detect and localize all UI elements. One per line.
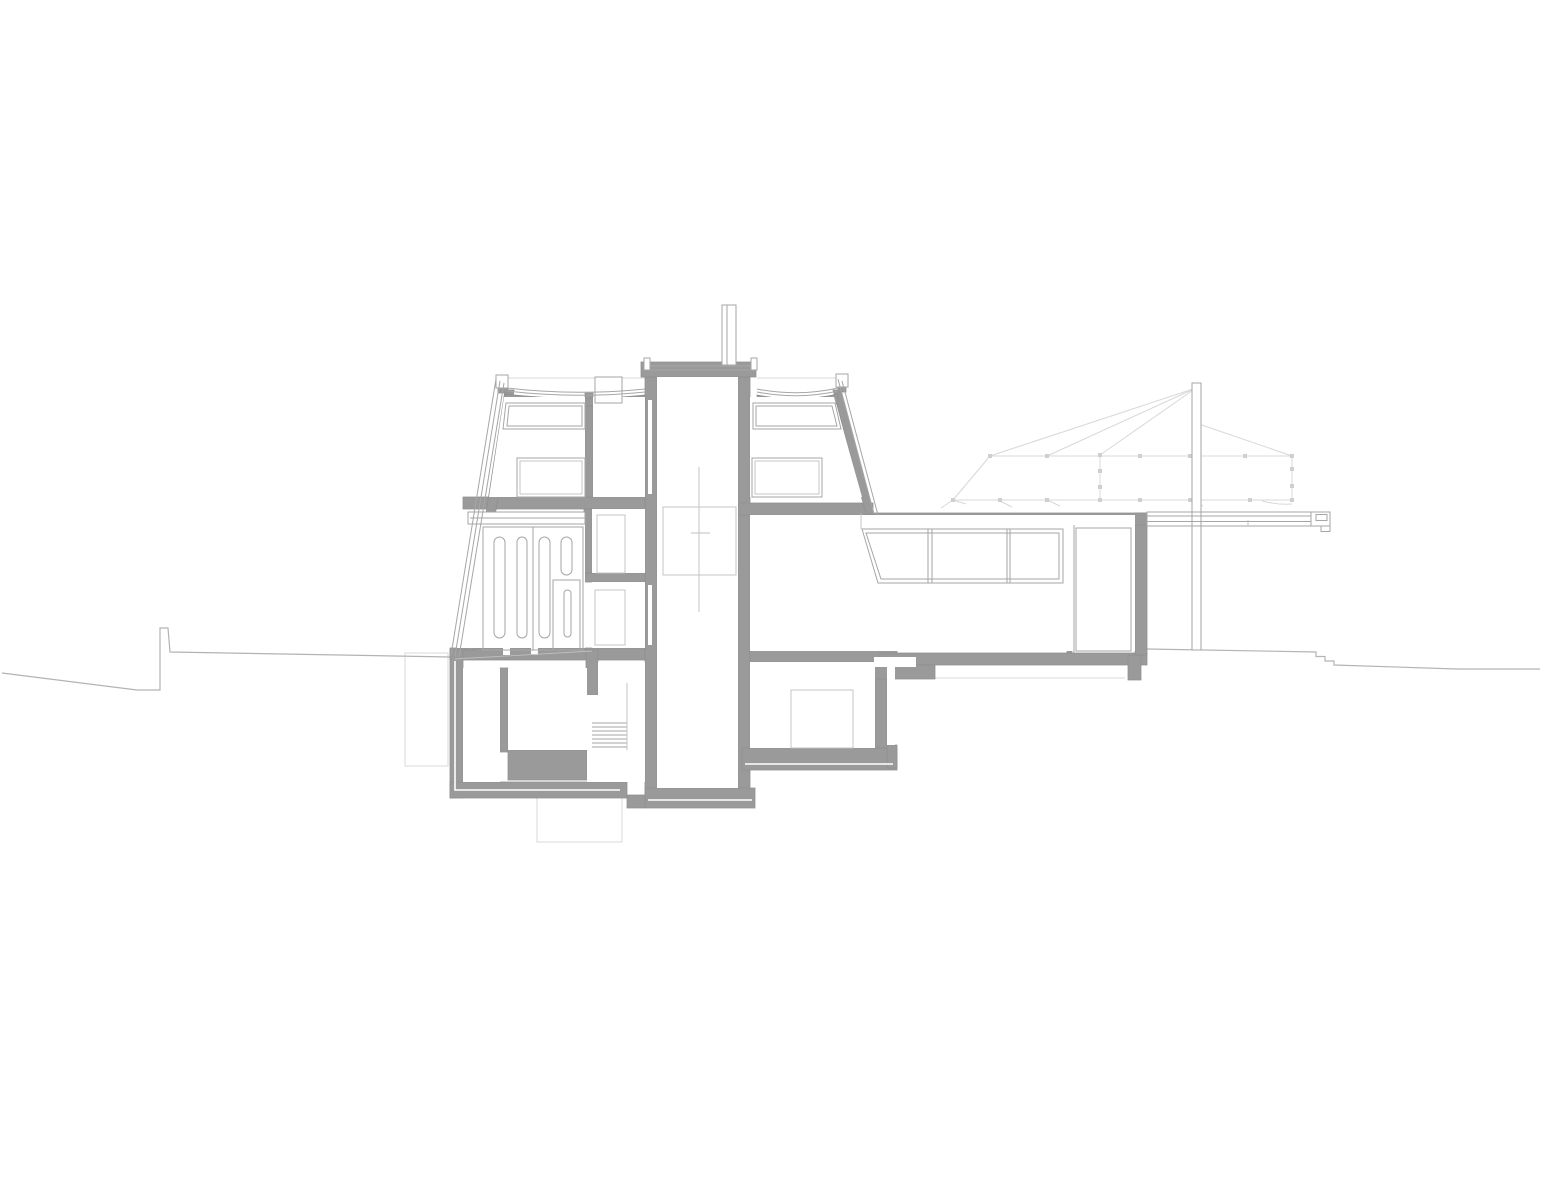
roof-top-line-right [757, 388, 838, 393]
canopy-beam [1147, 512, 1330, 526]
parapet-left [496, 375, 508, 388]
parapet-right [836, 374, 848, 387]
shaft-bottom-step [627, 795, 645, 808]
upper-room-left [489, 397, 585, 497]
roof-top-line-left [507, 388, 645, 392]
excavation-outline-left [405, 653, 448, 766]
section-drawing-canvas [0, 0, 1541, 1200]
cellar-lightwell [887, 666, 895, 745]
slab-vent [503, 648, 510, 655]
upper-floor-slab-right [738, 503, 873, 515]
terrain-right [1147, 649, 1540, 669]
basement-mid-slab [508, 750, 587, 780]
canopy-nodes [951, 385, 1294, 502]
canopy-left-edge [953, 456, 990, 500]
shaft-lining-strip [648, 400, 652, 494]
shaft-right-wall [738, 377, 750, 795]
wing-end-footing [1128, 655, 1141, 680]
basement-left-wall [450, 650, 463, 798]
canopy-beam-end-lip [1321, 526, 1330, 532]
canopy-cable [1199, 424, 1292, 456]
core-room-lower [592, 582, 645, 648]
core-mid-slab [585, 573, 645, 582]
shaft-interior [657, 377, 738, 788]
core-wall-upper [585, 393, 593, 497]
canopy-anchor-tick [1262, 501, 1292, 504]
canopy-beam-end-notch [1316, 515, 1327, 521]
shaft-bottom-slab [645, 788, 755, 808]
canopy-cable [1047, 388, 1196, 456]
roof-top-line-right [757, 391, 838, 396]
floor-junction-block [868, 665, 935, 679]
stair-room-upper [598, 662, 645, 695]
cellar-bottom-slab [742, 748, 897, 770]
shaft-lining-strip [648, 585, 652, 645]
skylight [595, 377, 622, 403]
terrain-left [2, 628, 450, 690]
canopy-cable [990, 388, 1196, 456]
shaft-cap-upstand [644, 358, 650, 370]
core-room-mid [592, 509, 645, 573]
wing-floor-slab [880, 653, 1147, 665]
tensile-canopy [941, 388, 1292, 508]
basement-divider-wall [500, 668, 508, 752]
basement-room-left [463, 668, 500, 782]
stair-wall [586, 650, 598, 695]
wing-end-wall [1135, 513, 1147, 655]
canopy-cable [1100, 388, 1196, 455]
roof-top-line-left [507, 391, 645, 395]
stair [592, 723, 627, 747]
cellar-room [750, 662, 875, 748]
shaft-cap-upstand [751, 358, 757, 370]
core-room-upper [593, 397, 645, 497]
section-drawing [0, 0, 1541, 1200]
floor-step-notch [874, 657, 916, 667]
basement-room-mid [508, 668, 587, 750]
chimney [722, 305, 736, 365]
